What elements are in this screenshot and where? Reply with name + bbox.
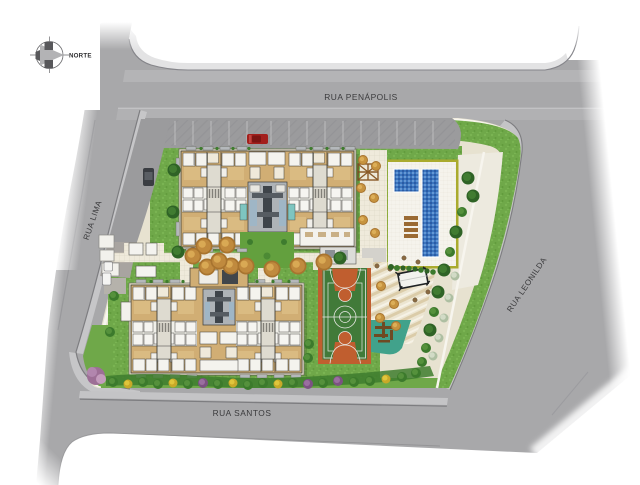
svg-text:NORTE: NORTE — [69, 53, 92, 60]
svg-text:RUA SANTOS: RUA SANTOS — [213, 408, 272, 418]
svg-text:RUA PENÁPOLIS: RUA PENÁPOLIS — [324, 92, 398, 102]
